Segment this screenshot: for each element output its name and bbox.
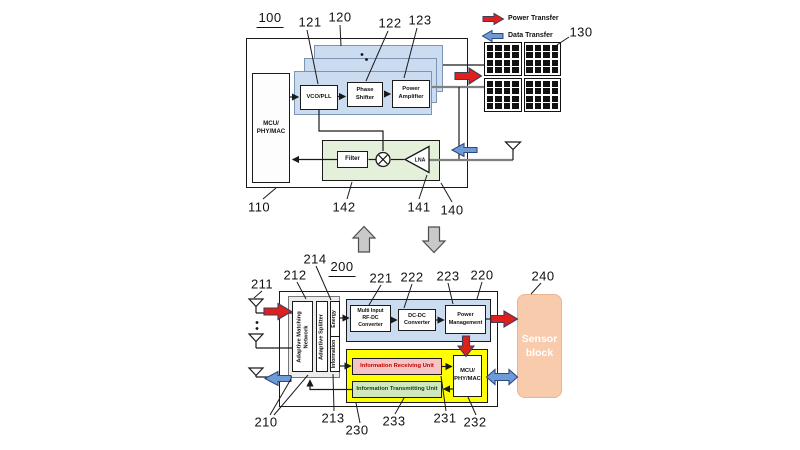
ref-211: 211 [251, 277, 273, 292]
ref-140: 140 [441, 203, 464, 218]
ref-141: 141 [408, 200, 431, 215]
antenna-array-130 [484, 42, 561, 112]
antenna-3-icon [249, 368, 263, 377]
ref-232: 232 [464, 415, 487, 430]
ref-130: 130 [570, 25, 593, 40]
ref-212: 212 [284, 268, 307, 283]
multi-input-rfdc-converter-block: Multi Input RF-DC Converter [350, 305, 391, 332]
ref-121: 121 [299, 15, 322, 30]
antenna-2-icon [249, 334, 263, 348]
antenna-array-subpanel [484, 78, 522, 112]
energy-port-label: Energy [332, 303, 338, 336]
ref-221: 221 [370, 271, 393, 286]
adaptive-splitter-label: Adaptive Splitter [319, 304, 326, 370]
legend-data-arrow-icon [483, 31, 504, 42]
patent-figure-canvas: MCU/ PHY/MAC VCO/PLL Phase Shifter Power… [0, 0, 800, 450]
ref-240: 240 [532, 269, 555, 284]
rx-antenna-icon [506, 142, 521, 160]
ref-210: 210 [255, 415, 278, 430]
ref-233: 233 [383, 414, 406, 429]
uplink-transition-arrow [353, 227, 375, 253]
legend-power-label: Power Transfer [508, 15, 559, 22]
ref-214: 214 [304, 252, 327, 267]
information-transmitting-unit-block: Information Transmitting Unit [352, 381, 442, 398]
ref-122: 122 [379, 16, 402, 31]
filter-block: Filter [337, 151, 368, 168]
ref-123: 123 [409, 13, 432, 28]
downlink-transition-arrow [423, 227, 445, 253]
mcu-phy-mac-block-200: MCU/ PHY/MAC [453, 355, 482, 397]
ref-142: 142 [333, 200, 356, 215]
information-receiving-unit-block: Information Receiving Unit [352, 358, 442, 375]
antenna-array-subpanel [524, 42, 562, 76]
ref-220: 220 [471, 268, 494, 283]
legend-data-label: Data Transfer [508, 32, 553, 39]
ref-120: 120 [329, 10, 352, 25]
ref-213: 213 [322, 411, 345, 426]
ref-222: 222 [401, 270, 424, 285]
energy-port-block: Energy [330, 301, 340, 337]
ref-110: 110 [248, 200, 270, 215]
sensor-block: Sensor block [517, 294, 562, 398]
ref-231: 231 [434, 411, 457, 426]
antenna-array-subpanel [524, 78, 562, 112]
information-port-label: Information [332, 338, 338, 371]
ref-100: 100 [257, 10, 284, 28]
antenna-array-subpanel [484, 42, 522, 76]
power-management-block: Power Management [445, 305, 486, 334]
vco-pll-block: VCO/PLL [300, 85, 338, 110]
adaptive-splitter-block: Adaptive Splitter [316, 301, 328, 372]
ref-200: 200 [329, 259, 356, 277]
information-port-block: Information [330, 336, 340, 372]
mcu-phy-mac-block-100: MCU/ PHY/MAC [252, 73, 290, 183]
antenna-1-icon [249, 299, 263, 313]
legend-power-arrow-icon [483, 14, 504, 25]
adaptive-matching-network-label: Adaptive Matching Network [296, 303, 309, 371]
ref-223: 223 [437, 269, 460, 284]
adaptive-matching-network-block: Adaptive Matching Network [292, 301, 313, 372]
dcdc-converter-block: DC-DC Converter [398, 309, 436, 331]
ref-230: 230 [346, 423, 369, 438]
phase-shifter-block: Phase Shifter [347, 82, 383, 107]
power-amplifier-block: Power Amplifier [392, 80, 430, 108]
